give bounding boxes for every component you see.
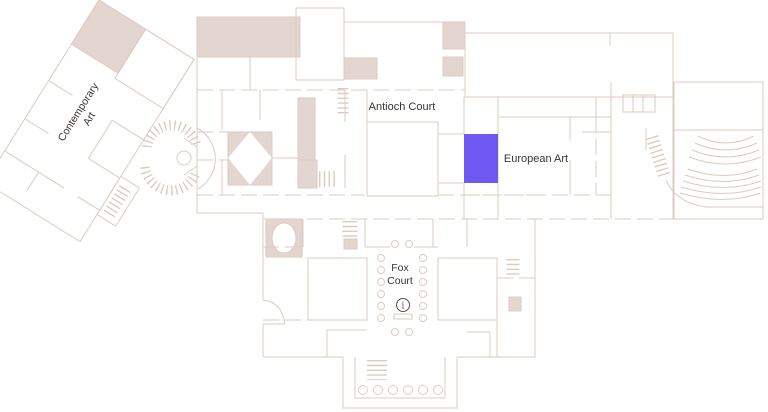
floor-plan-page: Contemporary Art <box>0 0 768 412</box>
wing-contemporary-art: Contemporary Art <box>0 0 213 253</box>
antioch-court-outline <box>367 122 438 196</box>
info-desk <box>394 314 412 319</box>
antioch-court-label: Antioch Court <box>369 101 436 113</box>
fox-court-room-right <box>438 258 497 320</box>
highlighted-room[interactable] <box>464 134 498 183</box>
fox-court-label-line1: Fox <box>391 262 409 274</box>
wing-filled-room <box>71 0 145 73</box>
wing-inner-walls <box>0 81 144 229</box>
spiral-staircase-icon <box>145 125 215 190</box>
info-marker[interactable]: i <box>397 299 410 312</box>
fox-court-label-line2: Court <box>387 275 413 287</box>
auditorium-staircase-icon <box>652 137 665 178</box>
auditorium-seating-icon <box>680 136 761 200</box>
info-symbol: i <box>402 302 405 312</box>
entrance-columns <box>359 386 443 395</box>
entrance-portico <box>343 357 457 408</box>
oval-room <box>272 223 296 253</box>
fox-court-room-left <box>308 258 367 320</box>
diamond-gallery-triangles <box>228 132 272 185</box>
floor-plan-map: Contemporary Art <box>0 0 768 412</box>
european-art-label: European Art <box>504 153 568 165</box>
auditorium-wing <box>646 82 763 219</box>
fox-court-colonnade <box>378 241 427 336</box>
auditorium-outline <box>674 82 763 219</box>
